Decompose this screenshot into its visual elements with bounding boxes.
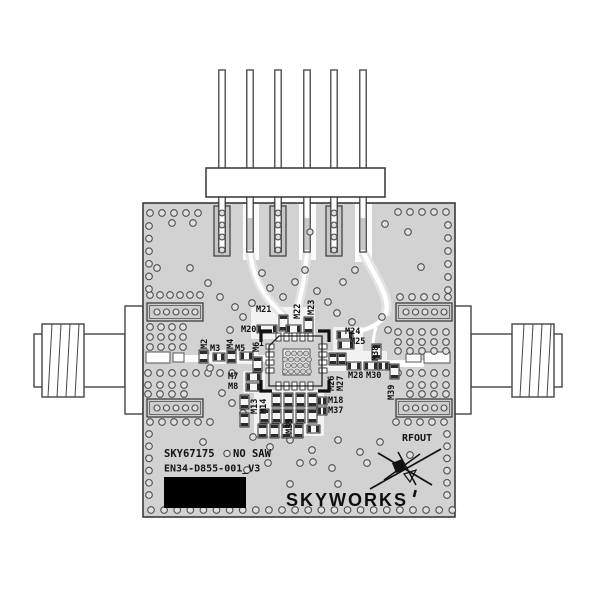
- via: [146, 248, 153, 255]
- via: [419, 329, 426, 336]
- component-label: M18: [328, 396, 343, 406]
- via: [190, 220, 197, 227]
- via: [229, 400, 236, 407]
- via: [154, 405, 160, 411]
- via: [325, 299, 332, 306]
- component-chip: [270, 424, 279, 438]
- component-label: M24: [345, 327, 360, 337]
- via: [310, 459, 317, 466]
- ic-pad: [266, 360, 274, 365]
- via: [407, 391, 414, 398]
- via: [227, 327, 234, 334]
- via: [146, 480, 153, 487]
- component-label: M39: [285, 419, 295, 434]
- via: [146, 443, 153, 450]
- via: [145, 391, 152, 398]
- via: [275, 247, 281, 253]
- via: [444, 492, 451, 499]
- via: [287, 481, 294, 488]
- component-chip: [272, 409, 281, 423]
- via: [180, 344, 187, 351]
- component-chip: [213, 353, 225, 361]
- via: [267, 285, 274, 292]
- via: [259, 270, 266, 277]
- ic-pad: [319, 344, 327, 349]
- via: [379, 314, 386, 321]
- via: [157, 391, 164, 398]
- rfout-label: RFOUT: [402, 433, 432, 444]
- via: [171, 210, 178, 217]
- via: [431, 329, 438, 336]
- via: [146, 286, 153, 293]
- via: [146, 467, 153, 474]
- via: [187, 265, 194, 272]
- ic-via: [286, 363, 291, 368]
- via: [441, 419, 448, 426]
- via: [187, 292, 194, 299]
- via: [173, 405, 179, 411]
- via: [280, 294, 287, 301]
- via: [422, 309, 428, 315]
- via: [417, 419, 424, 426]
- via: [147, 419, 154, 426]
- via: [385, 327, 392, 334]
- via: [158, 324, 165, 331]
- via: [444, 467, 451, 474]
- ic-pad: [292, 333, 297, 341]
- via: [421, 294, 428, 301]
- via: [232, 304, 239, 311]
- component-chip: [317, 397, 327, 405]
- ic-pad: [319, 352, 327, 357]
- via: [193, 370, 200, 377]
- component-chip: [246, 383, 261, 391]
- via: [183, 419, 190, 426]
- via: [436, 507, 443, 514]
- via: [195, 210, 202, 217]
- component-chip: [308, 409, 317, 423]
- via: [364, 460, 371, 467]
- sma-barrel: [42, 324, 84, 397]
- ic-via: [292, 351, 297, 356]
- pin-header-housing: [206, 168, 385, 197]
- via: [419, 209, 426, 216]
- via: [431, 339, 438, 346]
- via: [444, 443, 451, 450]
- via: [164, 309, 170, 315]
- via: [147, 334, 154, 341]
- via: [158, 344, 165, 351]
- via: [407, 370, 414, 377]
- via: [409, 294, 416, 301]
- ic-via: [283, 369, 288, 374]
- via: [441, 405, 447, 411]
- sma-barrel: [512, 324, 554, 397]
- via: [275, 234, 281, 240]
- via: [157, 292, 164, 299]
- via: [352, 267, 359, 274]
- component-label: M25: [350, 337, 365, 347]
- via: [146, 273, 153, 280]
- via: [407, 348, 414, 355]
- via: [154, 309, 160, 315]
- via: [395, 339, 402, 346]
- via: [395, 348, 402, 355]
- via: [444, 455, 451, 462]
- via: [334, 310, 341, 317]
- via: [169, 344, 176, 351]
- via: [331, 234, 337, 240]
- via: [429, 419, 436, 426]
- via: [169, 382, 176, 389]
- component-label: M20: [241, 325, 256, 335]
- via: [224, 450, 230, 456]
- component-chip: [272, 393, 281, 407]
- via: [444, 431, 451, 438]
- via: [169, 324, 176, 331]
- via: [431, 209, 438, 216]
- via: [445, 274, 452, 281]
- via: [200, 439, 207, 446]
- via: [335, 437, 342, 444]
- serial-label-block: [164, 477, 246, 508]
- via: [335, 481, 342, 488]
- via: [265, 460, 272, 467]
- ic-pad: [319, 368, 327, 373]
- via: [445, 294, 452, 301]
- via: [397, 294, 404, 301]
- component-chip: [304, 317, 313, 333]
- via: [331, 247, 337, 253]
- via: [433, 294, 440, 301]
- via: [314, 288, 321, 295]
- via: [249, 300, 256, 307]
- component-chip: [240, 395, 249, 409]
- component-chip: [308, 393, 317, 407]
- via: [217, 294, 224, 301]
- ic-via: [298, 363, 303, 368]
- via: [431, 382, 438, 389]
- sma-flange: [125, 306, 143, 414]
- via: [393, 419, 400, 426]
- via: [307, 229, 313, 235]
- via: [407, 209, 414, 216]
- component-chip: [390, 364, 399, 379]
- component-label: M28: [348, 371, 363, 381]
- silkscreen-note: NO SAW: [233, 448, 272, 460]
- via: [377, 439, 384, 446]
- via: [443, 348, 450, 355]
- via: [169, 391, 176, 398]
- via: [275, 210, 281, 216]
- skyworks-logo-text: SKYWORKS: [286, 490, 408, 510]
- via: [405, 419, 412, 426]
- component-chip: [258, 424, 267, 438]
- via: [157, 382, 164, 389]
- via: [148, 507, 155, 514]
- via: [297, 460, 304, 467]
- component-chip: [378, 362, 389, 370]
- via: [250, 434, 257, 441]
- via: [407, 382, 414, 389]
- via: [419, 370, 426, 377]
- via: [431, 370, 438, 377]
- via: [445, 248, 452, 255]
- via: [382, 221, 389, 228]
- via: [432, 405, 438, 411]
- sma-connector-left: [34, 306, 143, 414]
- ic-via: [307, 369, 312, 374]
- via: [395, 329, 402, 336]
- component-label: M6: [252, 342, 262, 352]
- via: [292, 279, 299, 286]
- via: [423, 507, 430, 514]
- via: [357, 449, 364, 456]
- via: [275, 222, 281, 228]
- via: [407, 452, 414, 459]
- via: [432, 309, 438, 315]
- component-chip: [338, 353, 346, 365]
- header-pin-pad: [361, 218, 366, 250]
- via: [154, 265, 161, 272]
- via: [177, 292, 184, 299]
- ic-pad: [266, 368, 274, 373]
- via: [219, 247, 225, 253]
- via: [431, 348, 438, 355]
- via: [164, 405, 170, 411]
- via: [197, 292, 204, 299]
- via: [145, 382, 152, 389]
- ic-via: [295, 357, 300, 362]
- via: [449, 507, 456, 514]
- via: [169, 220, 176, 227]
- via: [219, 390, 226, 397]
- component-label: M38: [371, 346, 381, 361]
- component-chip: [294, 424, 303, 438]
- product-image: 1 M21M22M23M20M2M3M4M5M6M7M8M24M25M38M26…: [0, 0, 600, 600]
- via: [444, 480, 451, 487]
- via: [207, 365, 214, 372]
- via: [331, 210, 337, 216]
- via: [431, 391, 438, 398]
- ic-via: [292, 363, 297, 368]
- ic-via: [301, 357, 306, 362]
- component-chip: [307, 425, 320, 433]
- via: [183, 309, 189, 315]
- ic-via: [301, 369, 306, 374]
- via: [219, 222, 225, 228]
- component-chip: [364, 362, 378, 370]
- via: [146, 223, 153, 230]
- ic-pad: [284, 333, 289, 341]
- ic-via: [286, 351, 291, 356]
- via: [146, 235, 153, 242]
- component-chip: [253, 357, 262, 372]
- via: [419, 391, 426, 398]
- via: [443, 329, 450, 336]
- rf-pad-left: [146, 352, 184, 363]
- via: [195, 419, 202, 426]
- via: [403, 309, 409, 315]
- ic-via: [304, 351, 309, 356]
- via: [219, 234, 225, 240]
- via: [183, 405, 189, 411]
- component-label: M2: [200, 339, 210, 349]
- via: [167, 292, 174, 299]
- via: [146, 261, 153, 268]
- sma-connector-right: [453, 306, 562, 414]
- via: [181, 382, 188, 389]
- component-label: M23: [307, 300, 317, 315]
- via: [340, 279, 347, 286]
- via: [147, 210, 154, 217]
- component-chip: [240, 413, 249, 427]
- via: [419, 382, 426, 389]
- component-chip: [296, 409, 305, 423]
- via: [147, 324, 154, 331]
- ic-pad: [308, 333, 313, 341]
- ic-via: [304, 363, 309, 368]
- component-label: M3: [210, 344, 220, 354]
- via: [443, 370, 450, 377]
- via: [445, 261, 452, 268]
- component-chip: [284, 393, 293, 407]
- via: [403, 405, 409, 411]
- ic-via: [289, 357, 294, 362]
- via: [253, 507, 260, 514]
- component-label: M27: [336, 376, 346, 391]
- via: [181, 370, 188, 377]
- via: [158, 334, 165, 341]
- component-chip: [246, 373, 261, 381]
- silkscreen-board-id: EN34-D855-001_V3: [164, 464, 260, 475]
- via: [159, 210, 166, 217]
- via: [445, 235, 452, 242]
- via: [422, 405, 428, 411]
- via: [266, 507, 273, 514]
- via: [349, 319, 356, 326]
- component-label: M30: [366, 371, 381, 381]
- component-chip: [347, 362, 361, 370]
- ic-pad: [300, 333, 305, 341]
- via: [169, 370, 176, 377]
- via: [309, 447, 316, 454]
- via: [407, 339, 414, 346]
- via: [205, 280, 212, 287]
- via: [181, 391, 188, 398]
- via: [413, 309, 419, 315]
- component-label: M5: [235, 344, 245, 354]
- silkscreen-part-number: SKY67175: [164, 448, 215, 460]
- via: [407, 329, 414, 336]
- component-label: M7: [228, 372, 238, 382]
- via: [180, 324, 187, 331]
- component-chip: [296, 393, 305, 407]
- component-label: M21: [256, 305, 271, 315]
- via: [413, 405, 419, 411]
- via: [410, 507, 417, 514]
- ic-via: [298, 351, 303, 356]
- via: [418, 264, 425, 271]
- via: [207, 419, 214, 426]
- via: [217, 370, 224, 377]
- via: [240, 314, 247, 321]
- via: [146, 431, 153, 438]
- via: [302, 267, 309, 274]
- via: [443, 209, 450, 216]
- component-label: M37: [328, 406, 343, 416]
- ic-via: [307, 357, 312, 362]
- component-label: M22: [293, 304, 303, 319]
- via: [192, 309, 198, 315]
- via: [180, 334, 187, 341]
- via: [192, 405, 198, 411]
- via: [157, 370, 164, 377]
- component-label: M8: [228, 382, 238, 392]
- via: [419, 339, 426, 346]
- header-pin-pad: [248, 218, 253, 250]
- via: [445, 222, 452, 229]
- via: [159, 419, 166, 426]
- via: [331, 222, 337, 228]
- via: [405, 229, 412, 236]
- component-label: M39: [387, 385, 397, 400]
- via: [443, 391, 450, 398]
- via: [147, 344, 154, 351]
- component-label: M14: [259, 399, 269, 414]
- via: [419, 348, 426, 355]
- via: [445, 287, 452, 294]
- via: [171, 419, 178, 426]
- component-chip: [199, 350, 208, 363]
- via: [219, 210, 225, 216]
- via: [441, 309, 447, 315]
- component-chip: [286, 325, 301, 333]
- via: [146, 492, 153, 499]
- ic-pad: [319, 360, 327, 365]
- via: [443, 339, 450, 346]
- via: [146, 455, 153, 462]
- via: [279, 507, 286, 514]
- ic-via: [289, 369, 294, 374]
- component-chip: [317, 407, 327, 415]
- ic-via: [295, 369, 300, 374]
- via: [145, 370, 152, 377]
- component-chip: [329, 353, 337, 365]
- via: [173, 309, 179, 315]
- via: [329, 465, 336, 472]
- via: [395, 209, 402, 216]
- ic-pad: [266, 352, 274, 357]
- via: [169, 334, 176, 341]
- via: [443, 382, 450, 389]
- via: [183, 210, 190, 217]
- ic-via: [283, 357, 288, 362]
